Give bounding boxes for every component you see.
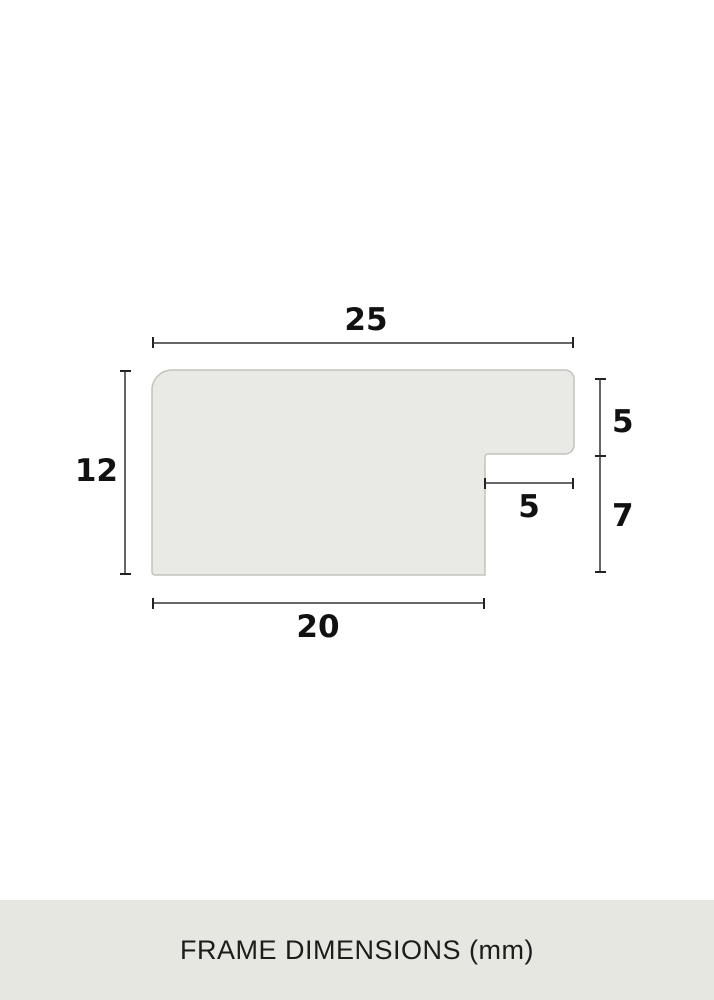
dim-right-upper-height: 5 (595, 379, 634, 456)
frame-dimensions-diagram: 25 12 5 7 5 (0, 0, 714, 1000)
dim-top-width: 25 (153, 302, 573, 348)
dim-bottom-width: 20 (153, 598, 484, 645)
dim-right-lower-label: 7 (612, 498, 634, 534)
dim-right-upper-label: 5 (612, 404, 634, 440)
dim-left-height: 12 (75, 371, 131, 574)
dim-rabbet-width-label: 5 (518, 489, 540, 525)
dim-bottom-width-label: 20 (296, 609, 339, 645)
dim-left-height-label: 12 (75, 453, 118, 489)
dim-top-width-label: 25 (344, 302, 387, 338)
dim-right-lower-height: 7 (595, 456, 634, 572)
footer-bar: FRAME DIMENSIONS (mm) (0, 900, 714, 1000)
frame-profile-shape (152, 370, 574, 575)
footer-caption: FRAME DIMENSIONS (mm) (180, 935, 534, 966)
profile-diagram-svg: 25 12 5 7 5 (0, 0, 714, 900)
dim-rabbet-width: 5 (485, 478, 573, 525)
